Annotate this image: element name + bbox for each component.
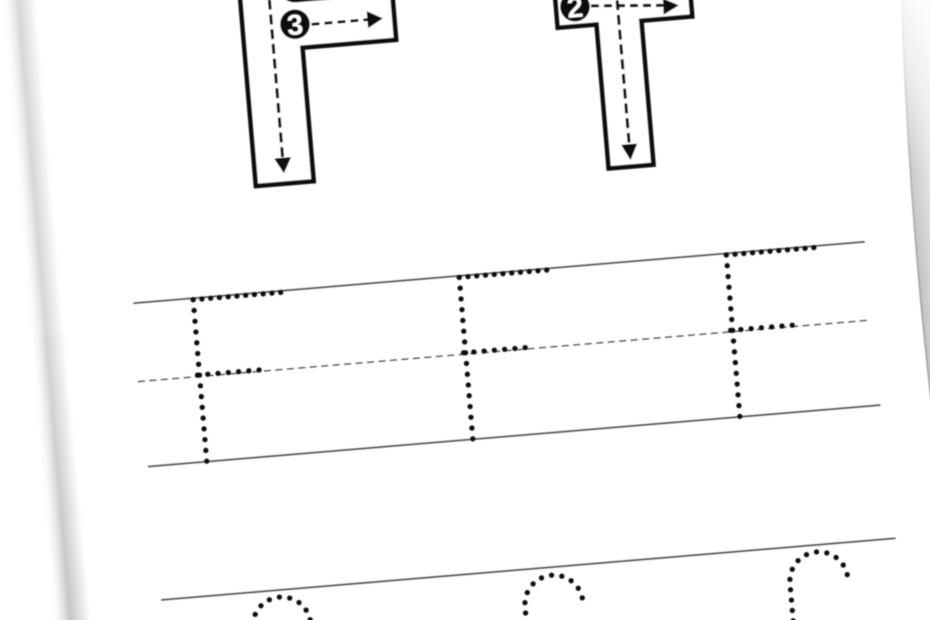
- svg-text:2: 2: [566, 0, 585, 25]
- svg-text:3: 3: [286, 9, 305, 42]
